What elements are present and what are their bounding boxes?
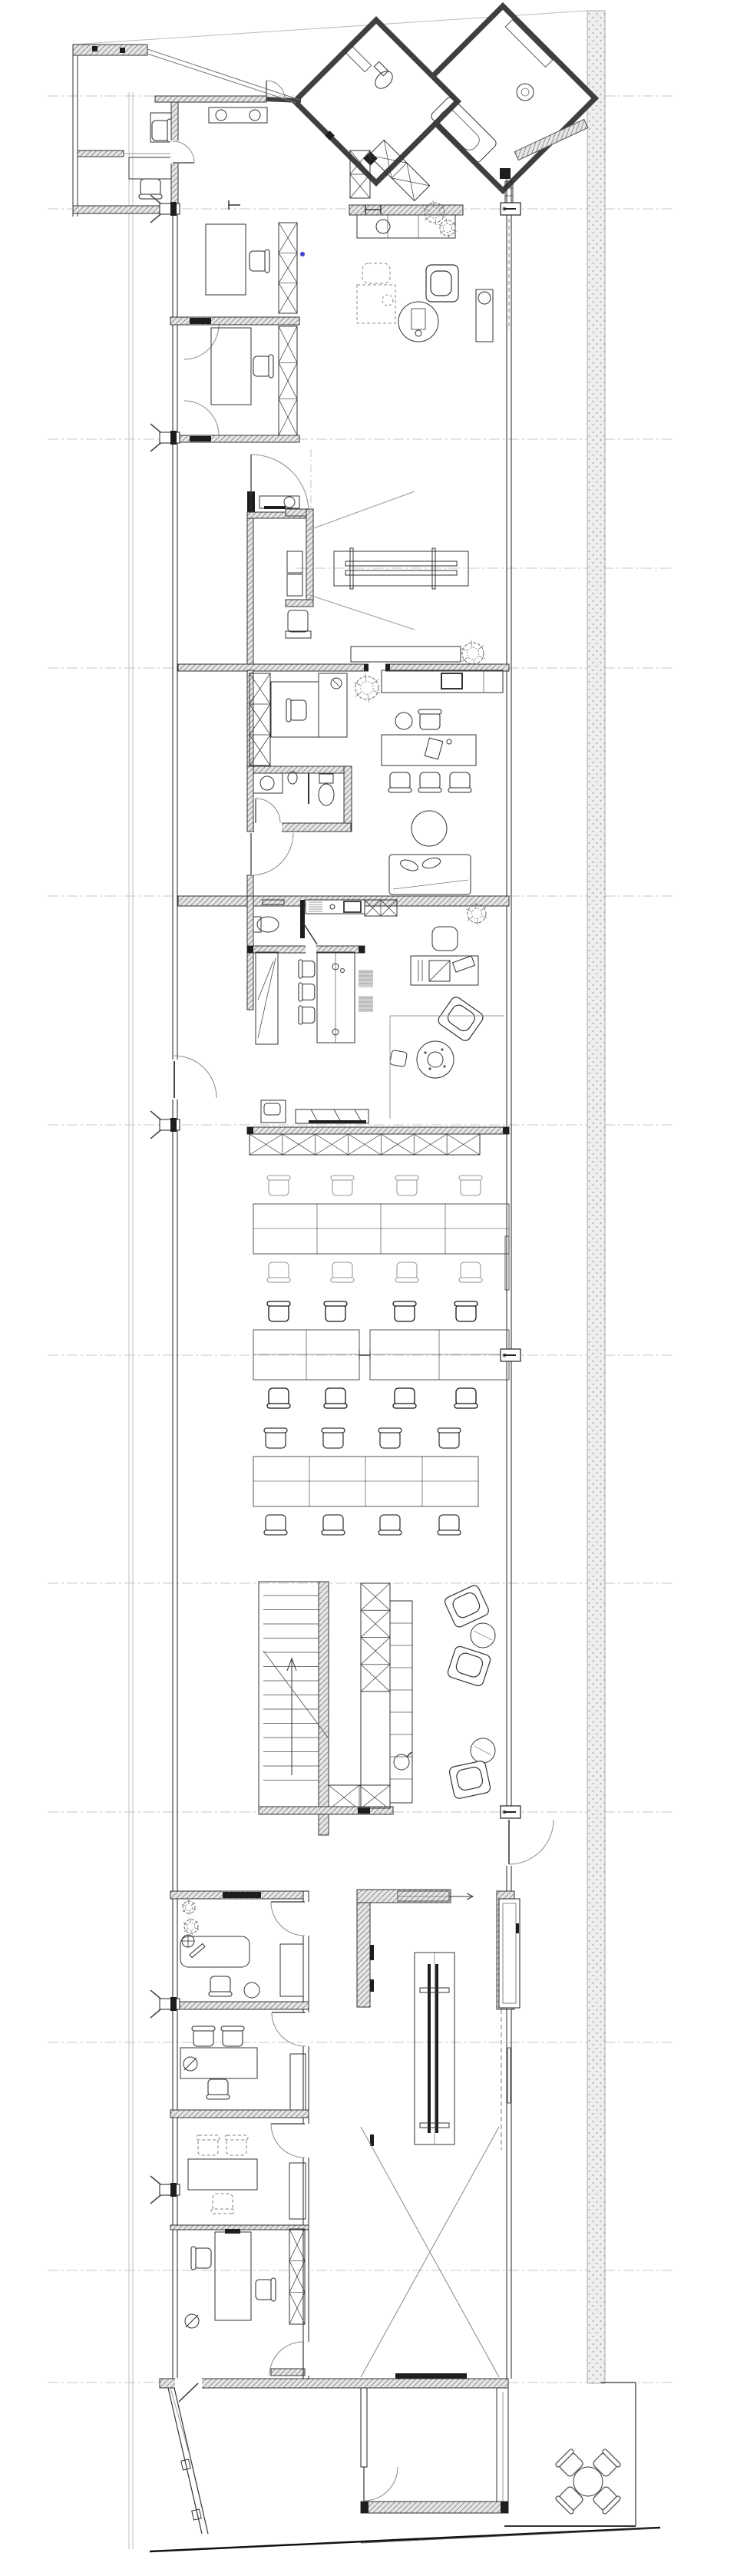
desk-row (370, 1330, 509, 1380)
side-table (411, 811, 447, 846)
mat (264, 506, 286, 509)
chair-row (395, 1262, 418, 1282)
counter-wall (286, 600, 313, 607)
site-wall-angled (168, 2388, 202, 2534)
chair-row (264, 1428, 287, 1448)
patio-chair (555, 2449, 586, 2479)
stair-wall (319, 1582, 329, 1835)
grid-marker-east (501, 1806, 521, 1818)
wc-wall (250, 766, 351, 773)
record-player (453, 956, 475, 972)
table-post (432, 548, 435, 589)
office-chair (253, 355, 273, 378)
door-swing (174, 1056, 216, 1098)
top-wall (155, 96, 266, 102)
glazing (147, 49, 299, 100)
door-gap (302, 1902, 309, 1936)
office-chair (286, 699, 306, 722)
bench (345, 561, 457, 566)
wall (271, 2369, 305, 2376)
annex-wall (73, 206, 160, 213)
chair-dashed (197, 2135, 220, 2155)
desk-bar (225, 2229, 240, 2234)
annex-wall (73, 45, 147, 55)
office-chair (250, 250, 269, 273)
table-seam (474, 1631, 492, 1640)
shelf-strip (390, 1601, 412, 1803)
chair-row (395, 1176, 418, 1195)
chair-row (324, 1301, 347, 1321)
mat (359, 970, 373, 987)
basin (260, 776, 274, 790)
grid-marker-east (501, 1349, 521, 1361)
wall-post (500, 168, 511, 179)
rug-dot (441, 1048, 443, 1050)
rug-center (428, 1052, 443, 1067)
seat (288, 610, 308, 632)
chair-dashed (225, 2135, 248, 2155)
wall-post (247, 1127, 253, 1134)
desk (211, 328, 251, 405)
annex-partition (78, 150, 124, 157)
bar-stool (299, 1006, 315, 1024)
vestibule-wall (361, 2388, 367, 2467)
knob (341, 969, 345, 973)
chair-row (264, 1515, 287, 1535)
shelving (361, 1583, 390, 1691)
door-swing (271, 2124, 305, 2158)
leader-line (309, 491, 415, 530)
door-swing (184, 401, 219, 435)
chair (152, 119, 172, 142)
screen (395, 2373, 467, 2379)
wall (170, 2002, 309, 2009)
box (264, 1103, 280, 1115)
rug-dot (443, 1065, 445, 1067)
wall (247, 875, 253, 896)
laptop (425, 738, 443, 759)
rail (428, 1964, 431, 2133)
wall-post (501, 2502, 508, 2513)
plan-layers (48, 6, 674, 2551)
work-table (334, 551, 468, 586)
facade-mullion (150, 2176, 180, 2204)
door-gap (170, 141, 179, 164)
tap (407, 1752, 411, 1757)
cup (447, 739, 451, 744)
lamp (332, 680, 340, 687)
office-chair (209, 1976, 232, 1996)
door-leaf (190, 318, 211, 324)
wall (247, 1127, 509, 1134)
shelf (287, 551, 302, 573)
rug (417, 1041, 454, 1078)
south-wall (160, 2379, 508, 2388)
wall (357, 1903, 370, 2007)
chair-row (267, 1388, 290, 1408)
slide-door (499, 1899, 520, 2008)
reception-counter (357, 215, 455, 238)
chair-row (378, 1428, 402, 1448)
pillow (421, 856, 441, 870)
plant (354, 673, 381, 702)
chair-row (267, 1262, 290, 1282)
stool-dashed (382, 295, 393, 306)
mirror-line (258, 961, 273, 1000)
stool-chair (448, 772, 471, 792)
door-gap (254, 822, 282, 833)
bowl (284, 497, 295, 508)
door-swing (184, 325, 219, 359)
wall-tick (370, 1979, 374, 1992)
wall (265, 99, 301, 101)
patio-chair (591, 2485, 622, 2515)
site-boundary (150, 2528, 660, 2551)
desk-row (253, 1457, 478, 1506)
chair-row (459, 1262, 482, 1282)
wall-post (503, 1127, 509, 1134)
desk (215, 2232, 251, 2320)
plant (182, 1900, 196, 1915)
grid-marker-east (501, 203, 521, 215)
plant (183, 1918, 200, 1935)
door-swing (272, 2012, 306, 2046)
bar-stool (299, 960, 315, 978)
bench-cushion (478, 292, 491, 304)
wall (357, 1890, 451, 1903)
wall-post (361, 2502, 368, 2513)
rack-bar (309, 1120, 366, 1123)
chair (139, 179, 162, 199)
toilet (319, 784, 334, 805)
round-table (398, 302, 438, 342)
door-gap (368, 663, 385, 673)
chair-row (454, 1301, 478, 1321)
sideboard (209, 107, 267, 123)
chair-row (454, 1388, 478, 1408)
boundary-wall (587, 11, 605, 2383)
shelf-strip (390, 1623, 412, 1779)
chair-row (331, 1262, 354, 1282)
door-handle (516, 1923, 519, 1933)
table-post (350, 548, 353, 589)
bowl (250, 110, 260, 121)
blanket-fold (393, 880, 468, 889)
stool-chair (418, 772, 441, 792)
leader-line (309, 595, 415, 630)
chair-row (393, 1301, 416, 1321)
shelving (361, 1691, 390, 1808)
rug-dot (428, 1067, 431, 1070)
chair-row (322, 1515, 345, 1535)
table-seam (474, 1746, 491, 1755)
wall (247, 670, 253, 766)
chair-row (438, 1428, 461, 1448)
toilet-tank (319, 774, 333, 783)
site-wall-angled (174, 2388, 208, 2534)
chair-row (267, 1301, 290, 1321)
glazing (147, 54, 296, 103)
patio-chair (591, 2449, 622, 2479)
desk-return (319, 673, 347, 737)
closet (280, 1944, 303, 1996)
under-stair-storage (329, 1785, 390, 1810)
door-leaf (303, 923, 317, 944)
stool (244, 1982, 259, 1998)
facade-mullion (150, 1990, 180, 2018)
armchair (436, 995, 484, 1043)
desk (206, 224, 246, 295)
door-swing (256, 799, 280, 823)
vestibule-wall (361, 2502, 508, 2513)
armchair (448, 1760, 491, 1799)
diameter-symbol (186, 2315, 198, 2327)
rod (507, 2048, 511, 2103)
office-chair (256, 2278, 276, 2301)
wardrobe-band (250, 1134, 480, 1155)
bar-stool (299, 983, 315, 1001)
door-leaf (190, 436, 211, 441)
office-chair (191, 2247, 211, 2270)
pillow (399, 858, 420, 872)
stool (395, 713, 412, 729)
desk-dashed (357, 285, 395, 323)
door-swing (364, 2467, 398, 2501)
table (180, 2048, 257, 2078)
cushion (390, 1050, 408, 1066)
desk (129, 157, 171, 179)
toilet (257, 917, 279, 932)
ottoman (432, 927, 458, 951)
armchair (447, 1645, 492, 1688)
door-swing (509, 1820, 554, 1864)
chair-row (438, 1515, 461, 1535)
chair-row (378, 1515, 402, 1535)
wall (170, 2110, 309, 2118)
wall (247, 766, 253, 832)
counter-wall (306, 509, 313, 607)
chair-dashed (211, 2194, 234, 2214)
chair-row (322, 1428, 345, 1448)
chair-row (331, 1176, 354, 1195)
plant (461, 640, 485, 667)
tray (411, 309, 425, 329)
chair-row (459, 1176, 482, 1195)
sink (441, 673, 462, 689)
table (188, 2159, 257, 2190)
box-diagonal (429, 961, 450, 981)
wall-tick (370, 1945, 374, 1960)
chair (192, 2026, 215, 2046)
wardrobe (279, 326, 297, 435)
window-post (92, 46, 97, 51)
stool-chair (388, 772, 411, 792)
daybed (351, 646, 461, 662)
desk-row (253, 1204, 509, 1254)
wc-wall (344, 766, 352, 832)
plant (438, 219, 456, 238)
mirror-line (258, 958, 276, 1038)
door-gap (302, 2124, 309, 2158)
chair-row (393, 1388, 416, 1408)
site-wall-angled (170, 2388, 190, 2455)
wall-post (364, 664, 368, 671)
armchair (443, 1584, 490, 1629)
cup (415, 330, 421, 336)
facade-mullion (150, 424, 180, 451)
marker-dot (300, 252, 305, 256)
rug-dot (424, 1051, 426, 1053)
bowl (216, 110, 226, 121)
door-mat (223, 1892, 261, 1898)
floor-plan-canvas (0, 0, 737, 2576)
door-swing (251, 833, 293, 875)
chair (221, 2026, 244, 2046)
chair-row (267, 1176, 290, 1195)
patio-chair (555, 2485, 586, 2515)
door-gap (306, 944, 316, 954)
facade-mullion (150, 1111, 180, 1139)
window-post (120, 48, 125, 53)
wc-partition (300, 900, 305, 938)
chair (207, 2079, 230, 2099)
floor-plan-page (0, 0, 737, 2576)
armchair (426, 265, 458, 302)
wall-post (359, 946, 365, 953)
door-swing (271, 1902, 305, 1936)
chair (418, 709, 441, 729)
door-gap (302, 2012, 309, 2046)
site-boundary (361, 2528, 659, 2543)
shelf (287, 574, 302, 596)
patio-table (573, 2467, 603, 2496)
wardrobe (289, 2229, 305, 2324)
chair-row (324, 1388, 347, 1408)
wall-post (247, 946, 253, 953)
bench (345, 570, 457, 575)
rail (435, 1964, 438, 2133)
diameter-symbol (184, 2058, 197, 2070)
chair-dashed (362, 263, 390, 283)
wardrobe (279, 223, 297, 313)
wall (247, 518, 253, 666)
